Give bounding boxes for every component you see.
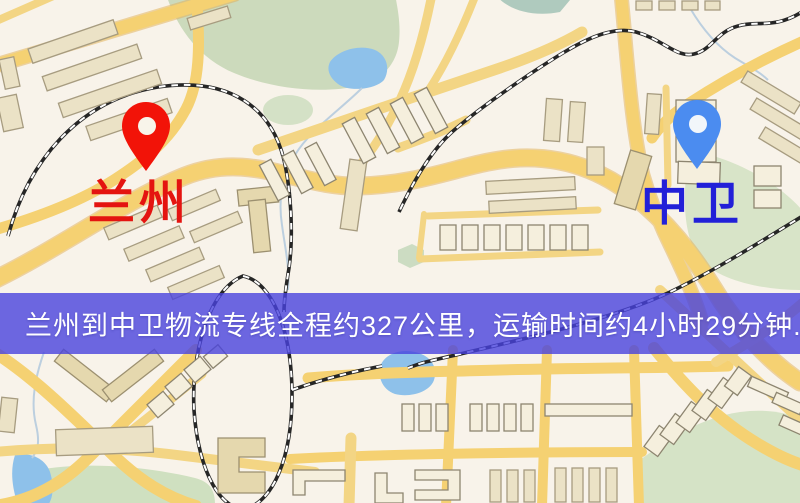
destination-label: 中卫 [641,177,743,230]
destination-pin-hole [689,115,707,133]
map: 兰州 中卫 兰州到中卫物流专线全程约327公里，运输时间约4小时29分钟. [0,0,800,503]
origin-pin-hole [138,117,156,135]
route-info-text: 兰州到中卫物流专线全程约327公里，运输时间约4小时29分钟. [25,304,800,343]
origin-label: 兰州 [88,176,190,229]
map-canvas[interactable]: 兰州 中卫 [0,0,800,503]
route-info-banner: 兰州到中卫物流专线全程约327公里，运输时间约4小时29分钟. [0,293,800,354]
